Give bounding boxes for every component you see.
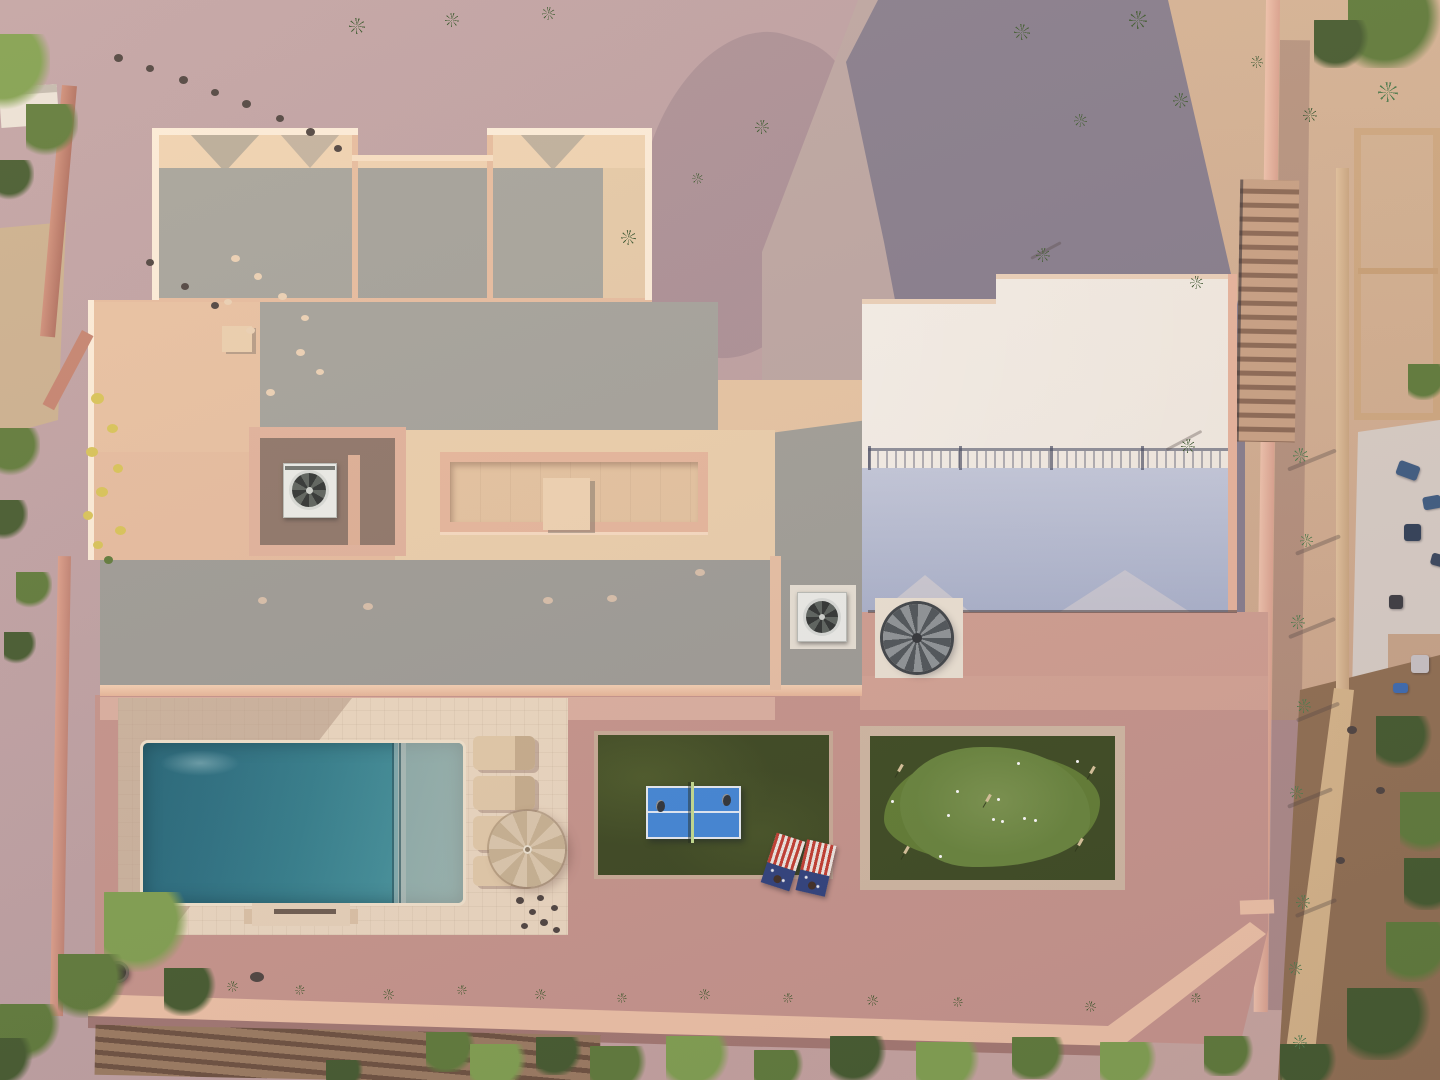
- color-grade-overlay: [0, 0, 1440, 1080]
- aerial-backyard-photo: [0, 0, 1440, 1080]
